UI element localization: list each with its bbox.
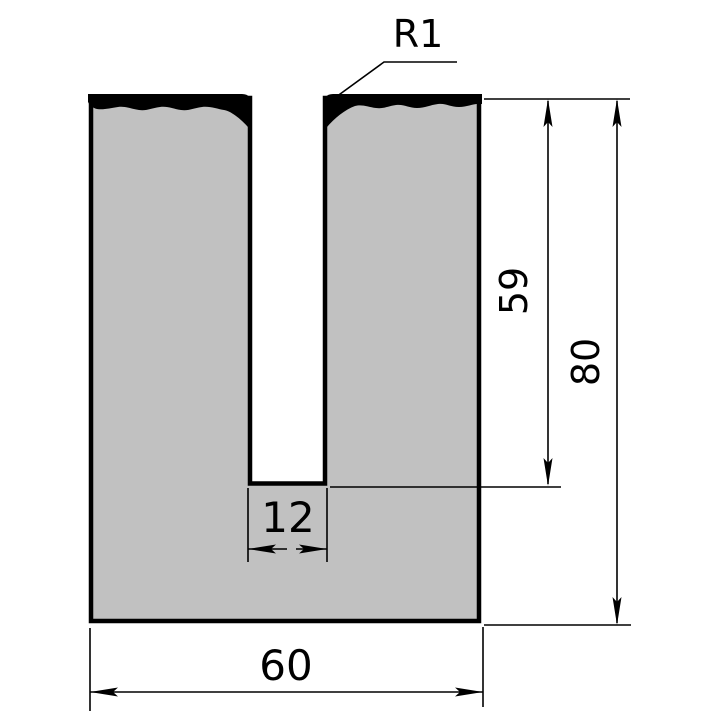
drawing-canvas: R1 59 80 12 xyxy=(0,0,720,720)
dim-total-width: 60 xyxy=(90,627,483,711)
technical-drawing-u-die: R1 59 80 12 xyxy=(0,0,720,720)
dim-radius: R1 xyxy=(336,12,457,97)
die-cross-section xyxy=(91,98,479,621)
radius-label: R1 xyxy=(393,12,444,56)
total-height-label: 80 xyxy=(564,338,608,386)
radius-leader-line xyxy=(336,62,457,97)
slot-width-label: 12 xyxy=(261,493,314,542)
total-width-label: 60 xyxy=(259,641,312,690)
dim-total-height: 80 xyxy=(484,99,631,625)
slot-depth-label: 59 xyxy=(492,267,536,315)
